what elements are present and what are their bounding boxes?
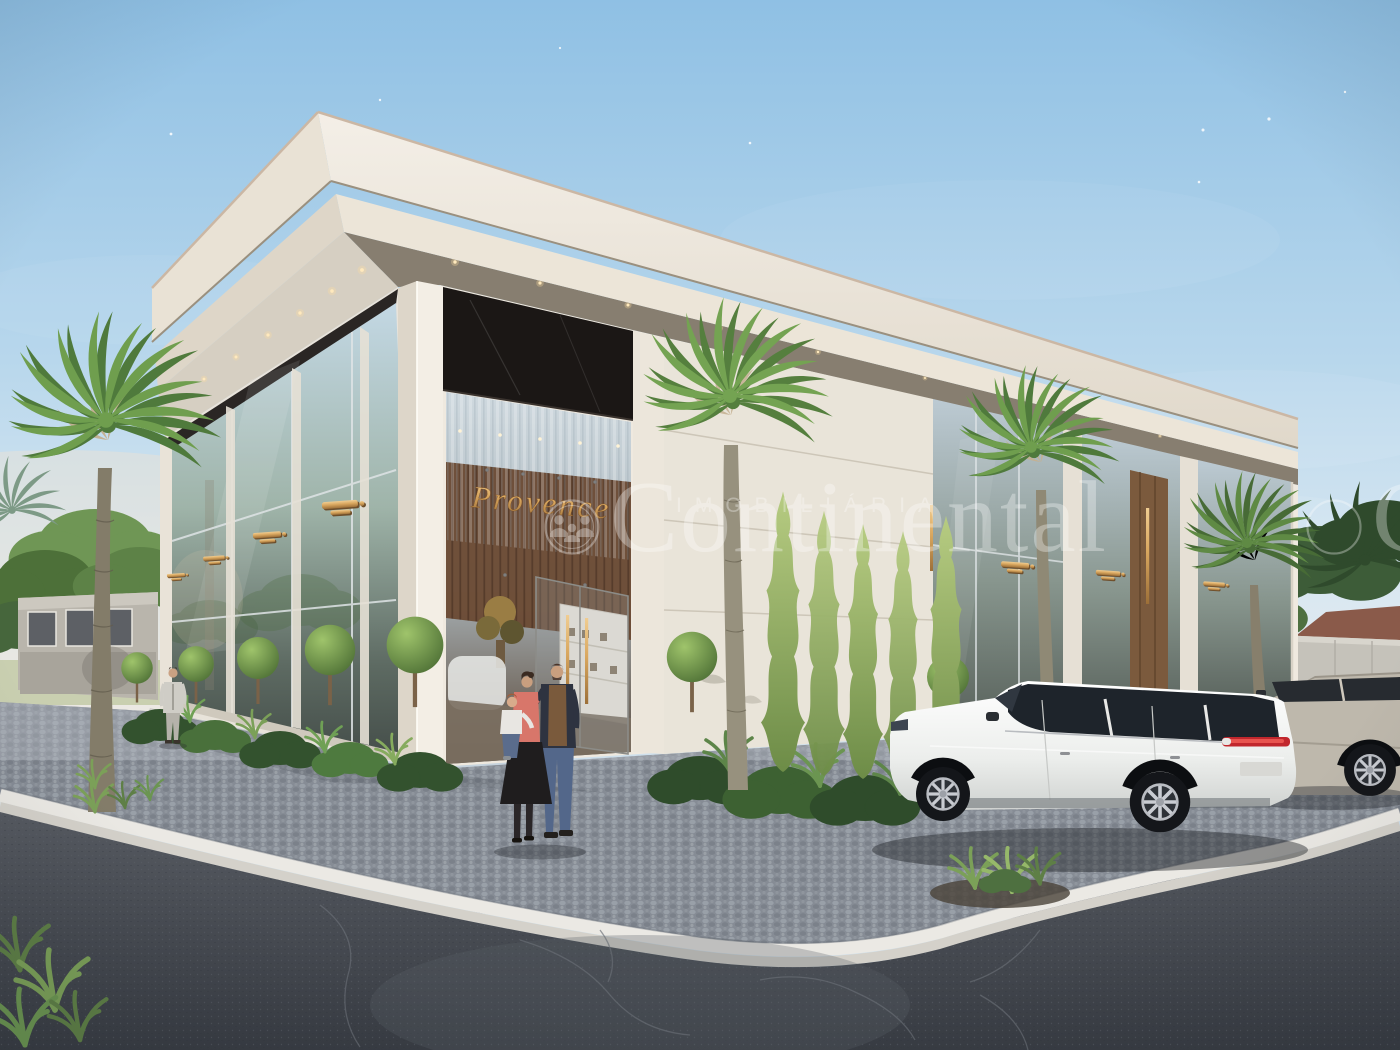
- vignette: [0, 0, 1400, 1050]
- render-canvas: Provence: [0, 0, 1400, 1050]
